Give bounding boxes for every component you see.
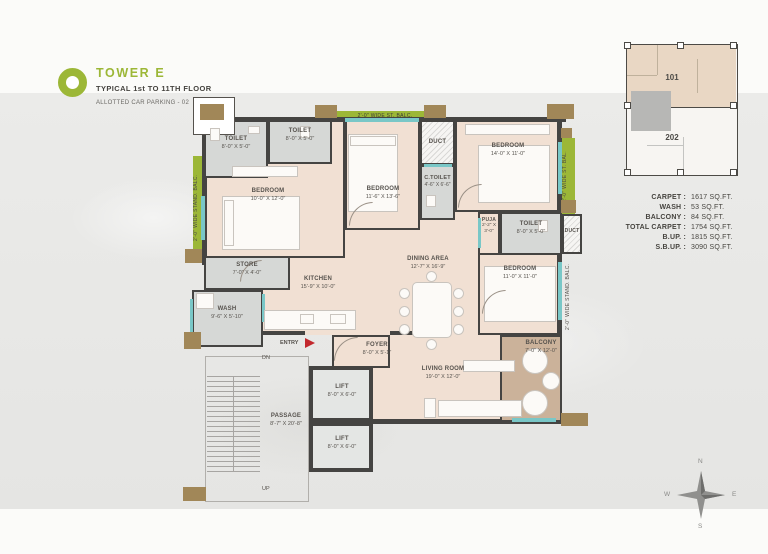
stat-value: 3090 SQ.FT. <box>691 243 733 253</box>
area-statement: CARPET :1617 SQ.FT. WASH :53 SQ.FT. BALC… <box>610 193 750 253</box>
sofa-arm <box>424 398 436 418</box>
window-bedroom3 <box>558 142 562 194</box>
label-dining: DINING AREA12'-7" X 16'-9" <box>388 256 468 270</box>
dining-chair <box>399 288 410 299</box>
strip-label-right-bottom: 2'-0" WIDE STAND. BALC. <box>565 255 577 339</box>
floor-subtitle: TYPICAL 1st TO 11TH FLOOR <box>96 84 212 93</box>
stat-value: 84 SQ.FT. <box>691 213 724 223</box>
dining-chair <box>453 288 464 299</box>
dining-chair <box>399 324 410 335</box>
dining-chair <box>453 306 464 317</box>
label-puja: PUJA2'-2" X 3'-0" <box>477 217 501 235</box>
compass-e: E <box>732 491 736 498</box>
balcony-planter <box>522 390 548 416</box>
label-wash: WASH9'-6" X 5'-10" <box>194 306 260 320</box>
window-wash <box>190 299 193 335</box>
label-store: STORE7'-0" X 4'-0" <box>207 262 287 276</box>
window-bedroom2 <box>345 118 419 122</box>
label-kitchen: KITCHEN15'-9" X 10'-0" <box>278 276 358 290</box>
dining-chair <box>399 306 410 317</box>
c-toilet-area <box>420 165 455 220</box>
parking-note: ALLOTTED CAR PARKING - 02 <box>96 100 189 106</box>
compass-n: N <box>698 458 703 465</box>
stat-label: B.UP. : <box>610 233 686 243</box>
key-plan: 101 202 <box>626 44 738 176</box>
bed-pillow-1 <box>224 200 234 246</box>
window-ctoilet <box>424 164 452 167</box>
entry-arrow-icon <box>305 338 315 348</box>
bed-pillow-2 <box>350 136 396 146</box>
key-plan-unit-101-label: 101 <box>647 73 697 82</box>
label-bedroom-1: BEDROOM10'-0" X 12'-0" <box>208 188 328 202</box>
stat-label: WASH : <box>610 203 686 213</box>
label-duct-top: DUCT <box>420 139 455 147</box>
label-lift-b: LIFT8'-0" X 6'-0" <box>312 436 372 450</box>
stat-label: CARPET : <box>610 193 686 203</box>
label-duct-right: DUCT <box>561 228 583 234</box>
kitchen-hob <box>330 314 346 324</box>
dining-chair <box>426 271 437 282</box>
sofa-living <box>438 400 522 417</box>
window-bedroom1 <box>201 196 205 240</box>
key-plan-unit-202-label: 202 <box>647 133 697 142</box>
tower-logo-icon <box>58 68 87 97</box>
stat-value: 1617 SQ.FT. <box>691 193 733 203</box>
wardrobe-bedroom3 <box>465 124 550 135</box>
label-bedroom-2: BEDROOM11'-6" X 13'-6" <box>347 186 419 200</box>
stat-label: BALCONY : <box>610 213 686 223</box>
stat-value: 1815 SQ.FT. <box>691 233 733 243</box>
stairs-dn-label: DN <box>262 355 270 361</box>
wc-fixture <box>426 195 436 207</box>
compass-s: S <box>698 523 702 530</box>
dining-chair <box>453 324 464 335</box>
label-living: LIVING ROOM19'-0" X 12'-0" <box>403 366 483 380</box>
window-balcony <box>512 418 556 422</box>
label-balcony: BALCONY7'-0" X 12'-0" <box>506 340 576 354</box>
label-foyer: FOYER8'-0" X 5'-1" <box>347 342 407 356</box>
kitchen-sink <box>300 314 314 324</box>
entry-label: ENTRY <box>280 340 298 346</box>
label-lift-a: LIFT8'-0" X 6'-0" <box>312 384 372 398</box>
label-toilet-b: TOILET8'-0" X 5'-0" <box>270 128 330 142</box>
dining-table <box>412 282 452 338</box>
dining-chair <box>426 339 437 350</box>
stat-value: 1754 SQ.FT. <box>691 223 733 233</box>
label-bedroom-4: BEDROOM11'-0" X 11'-0" <box>480 266 560 280</box>
stairs-up-label: UP <box>262 486 270 492</box>
basin-fixture <box>248 126 260 134</box>
label-toilet-c: TOILET8'-0" X 5'-0" <box>501 221 561 235</box>
label-bedroom-3: BEDROOM14'-0" X 11'-0" <box>458 143 558 157</box>
floorplan-sheet: TOWER E TYPICAL 1st TO 11TH FLOOR ALLOTT… <box>0 0 768 554</box>
page-title: TOWER E <box>96 66 165 80</box>
compass-rose-icon <box>673 467 729 523</box>
balcony-planter <box>542 372 560 390</box>
wardrobe-bedroom1 <box>232 166 298 177</box>
stat-label: TOTAL CARPET : <box>610 223 686 233</box>
stair-divider <box>233 376 234 472</box>
key-plan-core-block <box>631 91 671 131</box>
label-c-toilet: C.TOILET4'-6" X 6'-6" <box>420 175 455 188</box>
compass-w: W <box>664 491 670 498</box>
label-passage: PASSAGE8'-7" X 20'-8" <box>256 413 316 427</box>
stat-value: 53 SQ.FT. <box>691 203 724 213</box>
wall-kitchen-bottom <box>263 331 305 335</box>
stat-label: S.B.UP. : <box>610 243 686 253</box>
label-toilet-a: TOILET8'-0" X 5'-0" <box>206 136 266 150</box>
